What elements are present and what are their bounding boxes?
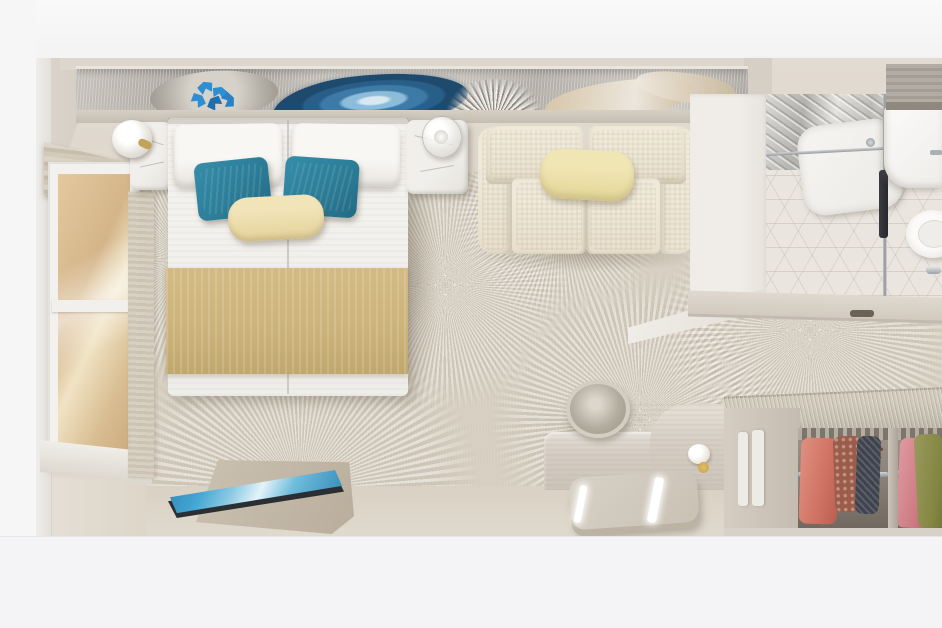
bathroom: [766, 94, 942, 320]
window-rail: [52, 300, 136, 312]
sheer-curtain: [128, 191, 154, 478]
closet-shelf-slat: [738, 432, 748, 506]
yellow-pillow: [539, 148, 635, 203]
entry-door-top: [886, 64, 942, 110]
garment-dark: [855, 436, 882, 515]
flush-button: [926, 266, 941, 274]
outside-bottom-band: [0, 536, 942, 628]
towel-bar: [930, 150, 942, 155]
garment-olive: [914, 433, 942, 528]
bathroom-door-handle: [850, 310, 874, 317]
outside-left-band: [0, 0, 36, 628]
closet-divider: [888, 428, 898, 534]
shower-door-handle: [879, 170, 888, 238]
bed-runner-texture: [166, 268, 408, 374]
toilet-lid: [918, 220, 942, 248]
butterfly-icon: [196, 79, 215, 96]
cream-bolster-pillow: [227, 194, 325, 243]
gold-trinket: [698, 462, 709, 473]
marble-vein: [420, 165, 454, 172]
bathroom-sink: [884, 106, 942, 188]
shower-drain: [866, 138, 875, 147]
closet-interior: [798, 428, 942, 534]
closet-shelf-slat: [752, 430, 764, 506]
marble-vein: [140, 162, 164, 168]
glass-globe-lamp-core: [434, 130, 448, 144]
sconce-lamp-left: [112, 120, 152, 158]
led-desk-top: [568, 470, 699, 531]
window-glass-sheen: [58, 174, 130, 458]
room-render: [0, 0, 942, 628]
bathroom-partition-wall: [690, 94, 770, 306]
butterfly-icon: [188, 90, 208, 110]
flower-ornament: [688, 444, 710, 464]
outside-top-band: [0, 0, 942, 62]
vanity-stool: [566, 380, 630, 438]
